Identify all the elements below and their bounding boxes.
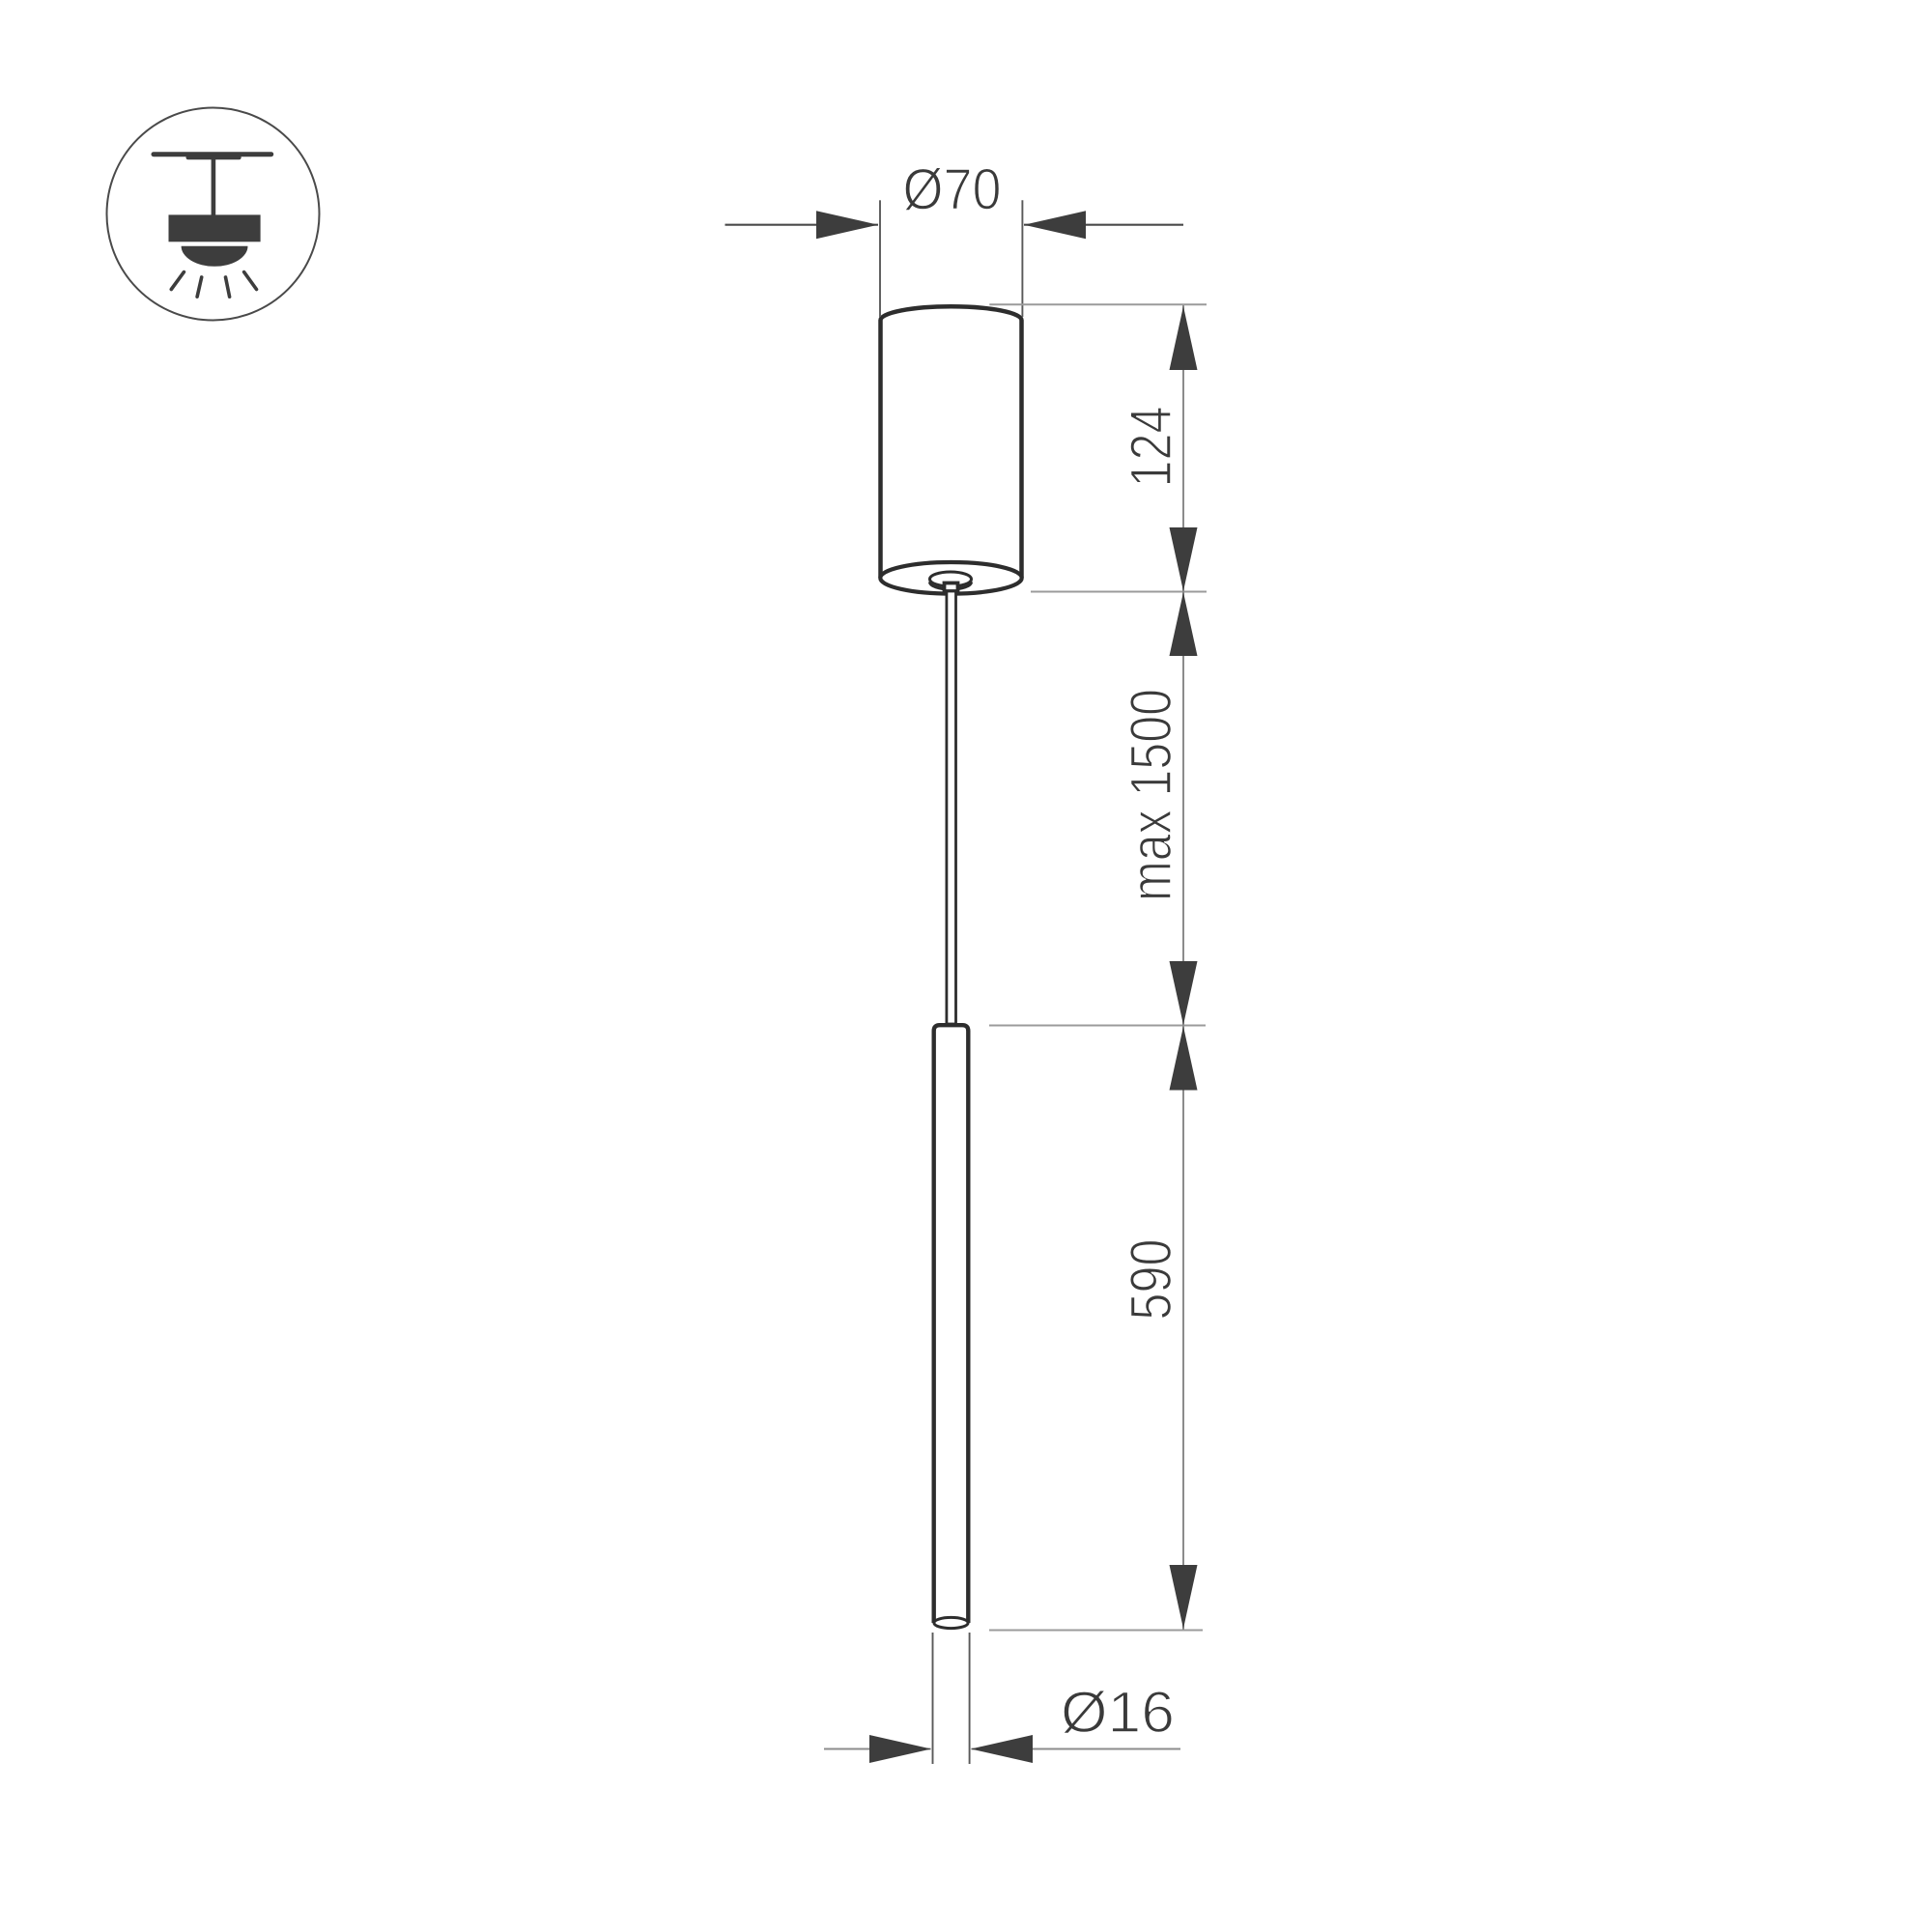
svg-text:max 1500: max 1500 (1119, 689, 1183, 901)
svg-text:124: 124 (1119, 407, 1183, 488)
svg-text:Ø70: Ø70 (903, 157, 1002, 222)
svg-text:Ø16: Ø16 (1061, 1680, 1175, 1745)
svg-text:590: 590 (1119, 1239, 1183, 1321)
